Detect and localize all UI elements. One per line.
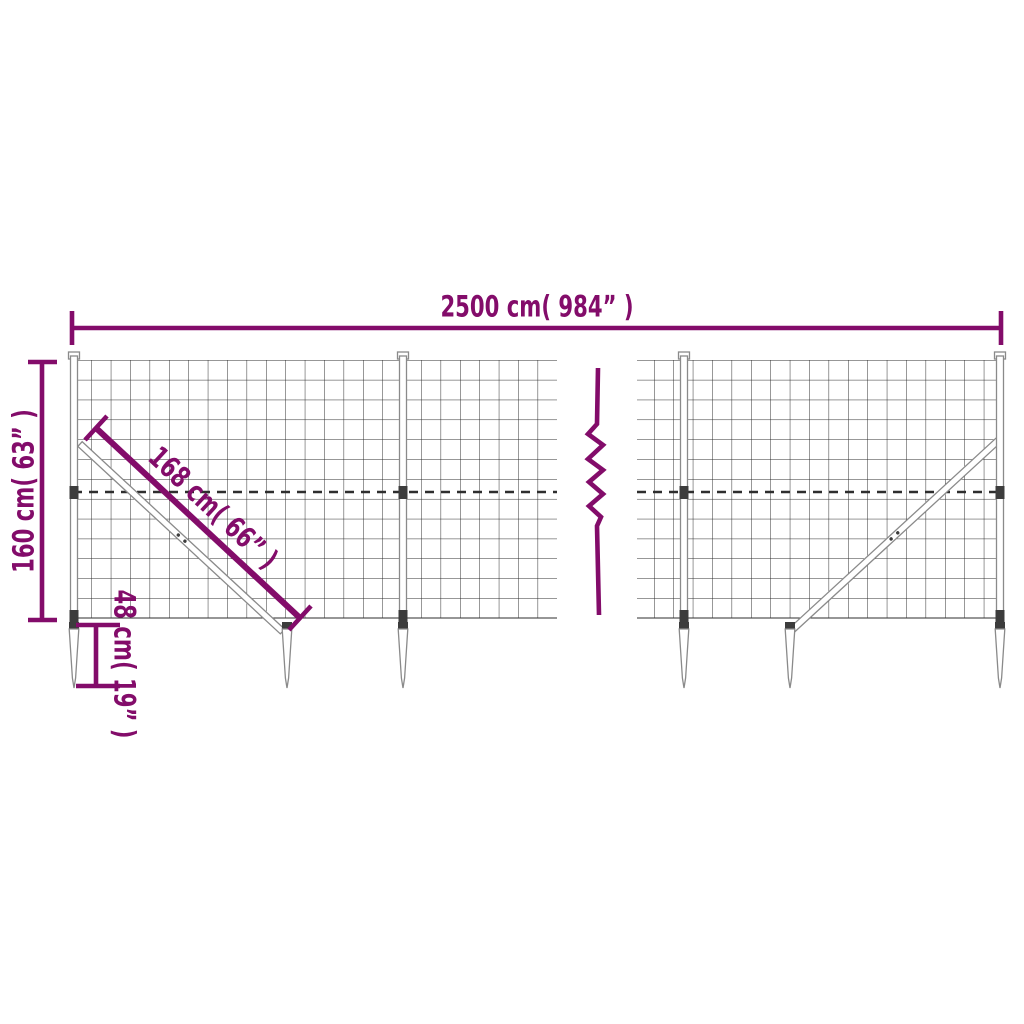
total-width-label: 2500 cm( 984” ): [440, 293, 633, 322]
ground-spike-icon: [398, 622, 408, 688]
spike-depth-label: 48 cm( 19” ): [110, 590, 139, 739]
fence-post-left-outer: [69, 352, 80, 626]
fence-post-left-inner: [398, 352, 409, 626]
ground-spike-icon: [995, 622, 1005, 688]
ground-spike-icon: [69, 622, 79, 688]
fence-illustration: [0, 0, 1024, 1024]
ground-spike-icon: [679, 622, 689, 688]
ground-spike-icon: [785, 622, 795, 688]
fence-height-label: 160 cm( 63” ): [10, 409, 39, 573]
ground-spike-icon: [282, 622, 292, 688]
wire-fence-dimension-diagram: 2500 cm( 984” ) 160 cm( 63” ) 168 cm( 66…: [0, 0, 1024, 1024]
fence-post-right-outer: [995, 352, 1006, 626]
break-mark: [588, 368, 603, 615]
mesh-panel-left: [72, 360, 557, 618]
fence-post-right-inner: [679, 352, 690, 626]
